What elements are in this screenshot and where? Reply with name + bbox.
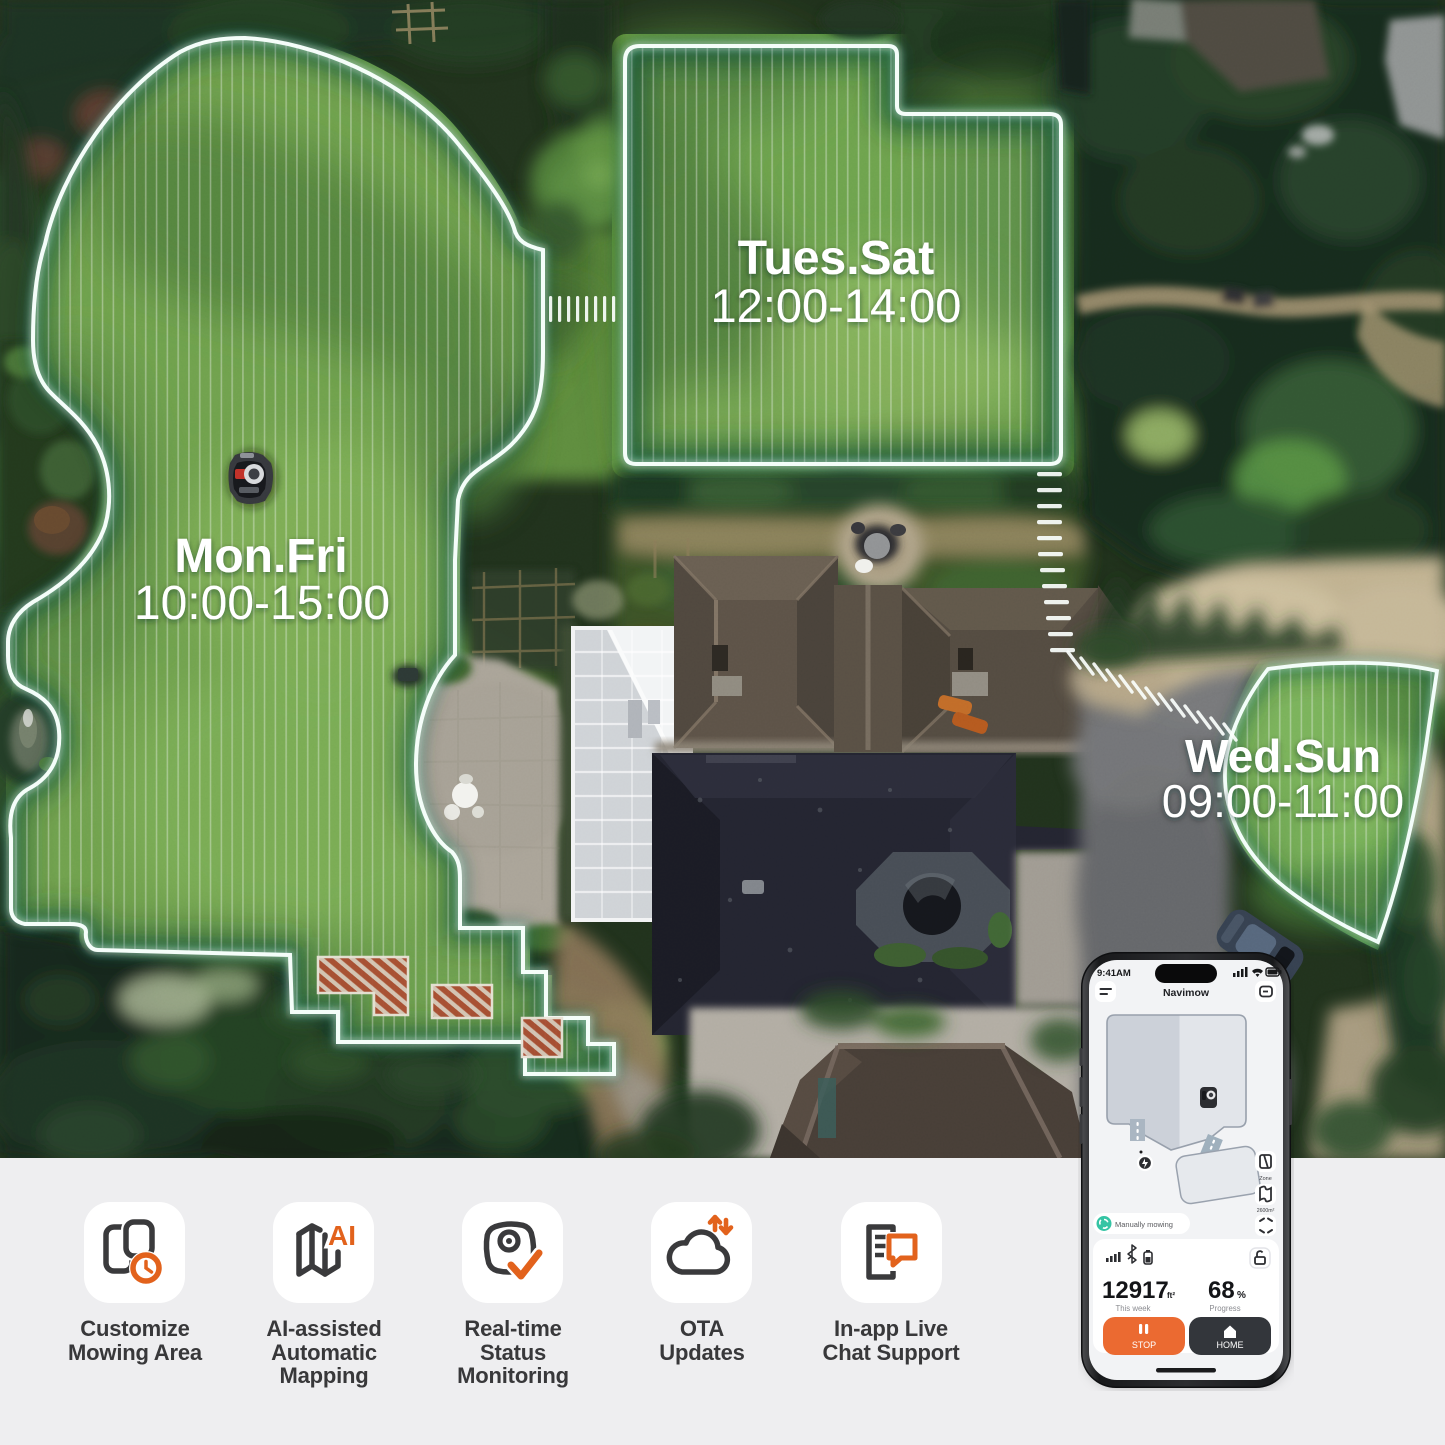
svg-text:68: 68 xyxy=(1208,1277,1235,1304)
svg-text:%: % xyxy=(1237,1290,1246,1301)
svg-text:HOME: HOME xyxy=(1217,1340,1244,1350)
svg-text:STOP: STOP xyxy=(1132,1340,1156,1350)
svg-text:Navimow: Navimow xyxy=(1163,987,1210,999)
svg-text:ft²: ft² xyxy=(1167,1291,1175,1300)
svg-text:This week: This week xyxy=(1115,1304,1150,1313)
svg-text:Zone: Zone xyxy=(1259,1176,1272,1182)
svg-text:9:41AM: 9:41AM xyxy=(1097,968,1131,979)
svg-text:2600m²: 2600m² xyxy=(1257,1208,1275,1214)
svg-text:AI: AI xyxy=(328,1220,356,1251)
svg-text:Progress: Progress xyxy=(1209,1304,1240,1313)
svg-text:12917: 12917 xyxy=(1102,1277,1169,1304)
svg-text:Manually mowing: Manually mowing xyxy=(1115,1220,1173,1229)
